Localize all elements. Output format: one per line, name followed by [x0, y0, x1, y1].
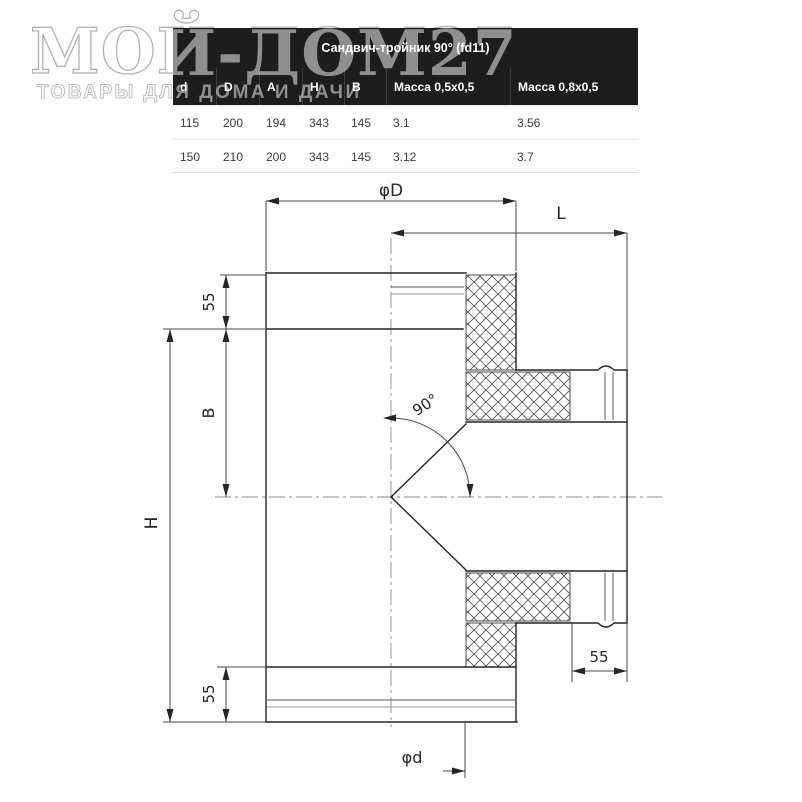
- label-55-top: 55: [200, 292, 218, 311]
- cell-B: 145: [344, 140, 386, 173]
- cell-d: 115: [173, 106, 216, 139]
- spec-table: МОЙ-ДОМ27 ТОВАРЫ ДЛЯ ДОМА И ДАЧИ Сандвич…: [173, 28, 638, 173]
- dimension-angle-90: 90°: [383, 390, 474, 497]
- cell-D: 200: [216, 106, 259, 139]
- table-header-row: d D A H B Масса 0,5х0,5 Масса 0,8х0,5: [173, 68, 638, 105]
- table-row: 115 200 194 343 145 3.1 3.56: [173, 105, 638, 139]
- dimension-phi-d: φd: [402, 722, 465, 778]
- cell-H: 343: [302, 140, 344, 173]
- cell-mass-05: 3.1: [386, 106, 510, 139]
- label-55-bottom: 55: [200, 684, 218, 703]
- table-title: Сандвич-тройник 90° (fd11): [173, 28, 638, 68]
- dimension-B: B: [199, 329, 230, 497]
- label-B: B: [199, 408, 218, 419]
- cell-mass-08: 3.56: [510, 106, 638, 139]
- label-L: L: [556, 204, 566, 224]
- dimension-H: H: [142, 329, 266, 722]
- col-header-D: D: [216, 68, 259, 105]
- dimension-55-top: 55: [163, 275, 267, 329]
- label-angle: 90°: [409, 390, 441, 420]
- col-header-d: d: [173, 68, 216, 105]
- cell-B: 145: [344, 106, 386, 139]
- label-55-right: 55: [589, 648, 608, 666]
- dimension-55-right: 55: [572, 623, 627, 682]
- label-H: H: [142, 517, 162, 530]
- col-header-H: H: [302, 68, 344, 105]
- cell-mass-05: 3.12: [386, 140, 510, 173]
- col-header-A: A: [259, 68, 302, 105]
- dimension-phi-D: φD: [266, 181, 516, 271]
- label-phi-D: φD: [379, 181, 403, 201]
- cell-D: 210: [216, 140, 259, 173]
- dimension-55-bottom: 55: [200, 667, 267, 722]
- cell-H: 343: [302, 106, 344, 139]
- table-row: 150 210 200 343 145 3.12 3.7: [173, 139, 638, 173]
- cell-mass-08: 3.7: [510, 140, 638, 173]
- col-header-mass-08: Масса 0,8х0,5: [510, 68, 638, 105]
- insulation-hatch: [466, 275, 570, 667]
- tee-body: [266, 273, 627, 722]
- cell-d: 150: [173, 140, 216, 173]
- cell-A: 200: [259, 140, 302, 173]
- col-header-B: B: [344, 68, 386, 105]
- label-phi-d: φd: [402, 748, 423, 767]
- col-header-mass-05: Масса 0,5х0,5: [386, 68, 510, 105]
- page: МОЙ-ДОМ27 ТОВАРЫ ДЛЯ ДОМА И ДАЧИ: [0, 0, 802, 802]
- cell-A: 194: [259, 106, 302, 139]
